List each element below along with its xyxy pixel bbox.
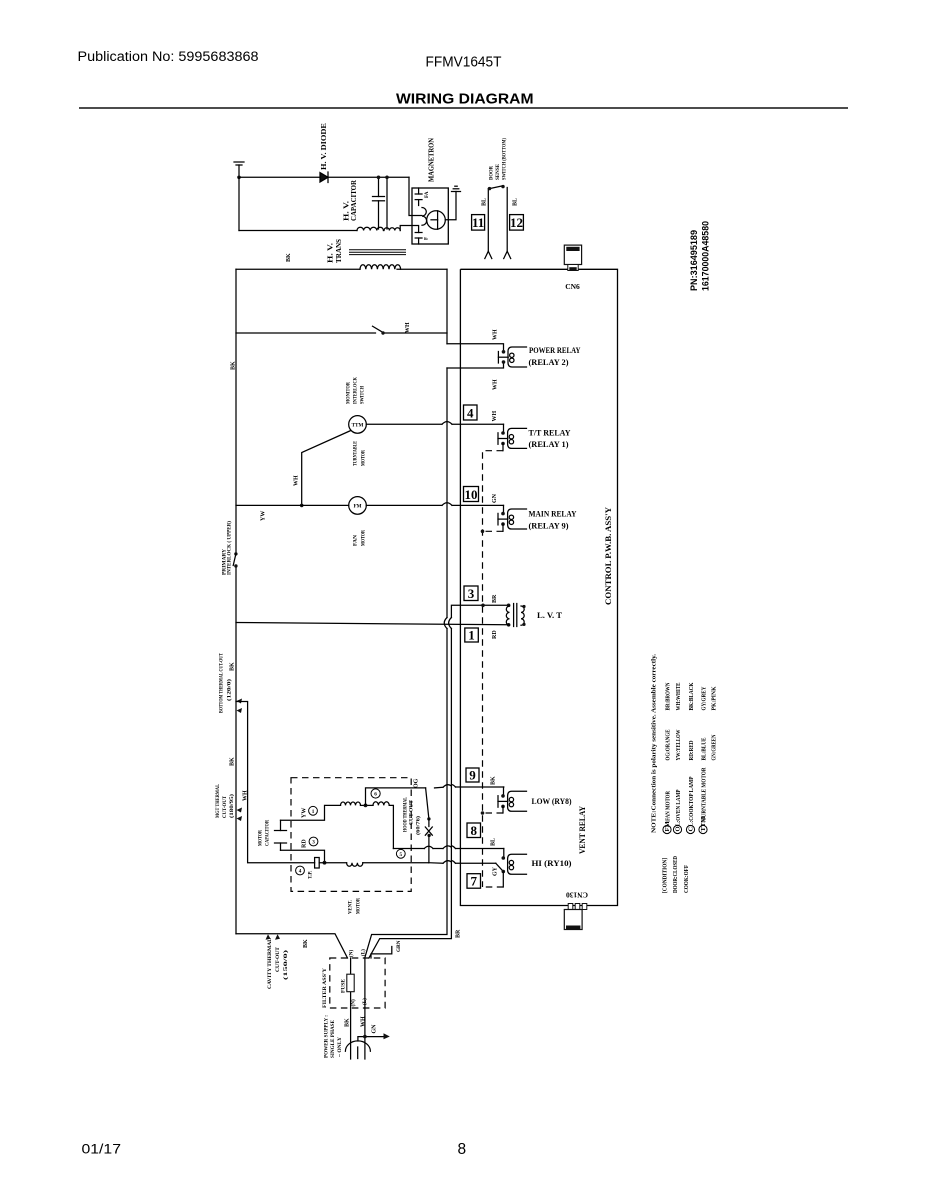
- svg-text:FA: FA: [424, 191, 430, 198]
- svg-text:BK: BK: [231, 361, 237, 370]
- svg-text:FUSE: FUSE: [340, 978, 346, 993]
- svg-text:INTERLOCK: INTERLOCK: [353, 377, 359, 404]
- svg-text:(RELAY 1): (RELAY 1): [529, 440, 569, 449]
- svg-text:SINGLE PHASE: SINGLE PHASE: [330, 1019, 336, 1058]
- svg-text:BK: BK: [230, 662, 236, 671]
- svg-text:WH: WH: [492, 379, 498, 390]
- svg-text:(L): (L): [360, 949, 367, 956]
- svg-text:GN: GN: [372, 1024, 378, 1034]
- svg-text:MOTOR: MOTOR: [356, 898, 362, 914]
- svg-text:GN: GN: [492, 493, 498, 503]
- svg-text:~ ONLY: ~ ONLY: [337, 1037, 343, 1057]
- svg-text:T.P.: T.P.: [308, 870, 314, 879]
- svg-text:BK: BK: [303, 939, 309, 948]
- svg-text:9: 9: [469, 768, 476, 783]
- svg-text:POWER RELAY: POWER RELAY: [529, 346, 581, 355]
- svg-text:7: 7: [470, 874, 477, 889]
- svg-text:GRN: GRN: [396, 940, 402, 952]
- svg-text:LOW (RY8): LOW (RY8): [532, 797, 572, 806]
- svg-text:GY:GREY: GY:GREY: [701, 686, 708, 710]
- svg-text:TTM: TTM: [352, 423, 364, 429]
- svg-text:CN130: CN130: [566, 891, 588, 900]
- svg-text:DOOR: DOOR: [489, 166, 495, 180]
- svg-text:SWITCH: SWITCH: [360, 386, 366, 404]
- svg-text:SENSE: SENSE: [495, 163, 501, 180]
- svg-text:12: 12: [510, 215, 523, 230]
- svg-text:MOTOR: MOTOR: [361, 450, 367, 466]
- svg-text:BK: BK: [491, 776, 497, 785]
- svg-text:MGT THERMAL: MGT THERMAL: [215, 784, 221, 818]
- svg-text:F: F: [424, 237, 430, 240]
- svg-text:CN6: CN6: [565, 282, 580, 291]
- svg-text:WH: WH: [492, 411, 498, 422]
- svg-text:GN:GREEN: GN:GREEN: [710, 734, 717, 760]
- svg-text:GY: GY: [493, 866, 499, 876]
- svg-text:(N): (N): [350, 999, 357, 1006]
- svg-text:(RELAY 9): (RELAY 9): [529, 522, 569, 531]
- svg-text:WH: WH: [360, 1016, 366, 1027]
- svg-text:T/T RELAY: T/T RELAY: [529, 429, 571, 438]
- svg-text:(RELAY 2): (RELAY 2): [529, 358, 569, 367]
- svg-text:10: 10: [465, 487, 478, 502]
- svg-text:YW:YELLOW: YW:YELLOW: [675, 729, 682, 760]
- svg-text:DOOR:CLOSED: DOOR:CLOSED: [672, 856, 679, 893]
- svg-text:WIRING DIAGRAM: WIRING DIAGRAM: [396, 91, 534, 108]
- svg-text:BL: BL: [491, 838, 497, 846]
- svg-text:OG: OG: [413, 778, 419, 788]
- svg-text:CAPACITOR: CAPACITOR: [349, 179, 358, 221]
- svg-text:CUT-OUT: CUT-OUT: [275, 946, 281, 972]
- svg-text:WH: WH: [294, 475, 300, 486]
- svg-text:Publication No: 5995683868: Publication No: 5995683868: [78, 49, 259, 64]
- svg-text:COOK:OFF: COOK:OFF: [683, 865, 690, 893]
- svg-text:YW: YW: [261, 511, 267, 521]
- svg-text:VENT.: VENT.: [348, 899, 354, 914]
- svg-text:BL:BLUE: BL:BLUE: [701, 737, 708, 760]
- svg-text:(60/76): (60/76): [415, 816, 422, 835]
- svg-text:POWER SUPPLY :: POWER SUPPLY :: [324, 1015, 330, 1058]
- svg-text:8: 8: [470, 823, 477, 838]
- svg-text:FFMV1645T: FFMV1645T: [426, 55, 502, 71]
- svg-text:4: 4: [299, 869, 302, 875]
- svg-text:(180/95): (180/95): [228, 794, 235, 818]
- svg-text:FAN: FAN: [353, 535, 359, 546]
- svg-text:5: 5: [400, 852, 403, 858]
- svg-text:4: 4: [467, 405, 474, 420]
- svg-text:INTERLOCK ( UPPER): INTERLOCK ( UPPER): [226, 521, 233, 575]
- svg-text:NOTE:Connection is polarity se: NOTE:Connection is polarity sensitive. A…: [651, 654, 658, 833]
- svg-text:(150/0): (150/0): [282, 949, 289, 980]
- svg-text::OVEN LAMP: :OVEN LAMP: [675, 790, 682, 823]
- svg-text:CUT-OUT: CUT-OUT: [409, 799, 415, 825]
- svg-text:1: 1: [312, 809, 315, 815]
- svg-text:16170000A48580: 16170000A48580: [701, 221, 712, 291]
- svg-text:BL: BL: [513, 198, 519, 206]
- svg-text:MOTOR: MOTOR: [361, 530, 367, 546]
- svg-text:H. V. DIODE: H. V. DIODE: [319, 123, 328, 170]
- svg-text:BK: BK: [230, 757, 236, 766]
- svg-text:3: 3: [468, 586, 475, 601]
- svg-text:8: 8: [458, 1141, 467, 1158]
- svg-text:MAGNETRON: MAGNETRON: [427, 137, 436, 182]
- svg-text:BOTTOM THERMAL CUT-OUT: BOTTOM THERMAL CUT-OUT: [219, 653, 225, 713]
- svg-text:L. V. T: L. V. T: [537, 611, 563, 620]
- svg-text:PN:316495189: PN:316495189: [689, 230, 700, 291]
- svg-text:BR: BR: [455, 929, 461, 938]
- svg-text:TRANS: TRANS: [334, 239, 343, 263]
- svg-text:1: 1: [468, 628, 475, 643]
- svg-text:6: 6: [374, 792, 377, 798]
- svg-text:BK:BLACK: BK:BLACK: [688, 682, 695, 711]
- svg-text:3: 3: [312, 840, 315, 846]
- svg-text:CAVITY THERMAL: CAVITY THERMAL: [267, 937, 273, 989]
- svg-text:RD:RED: RD:RED: [688, 740, 695, 760]
- svg-text:MAIN RELAY: MAIN RELAY: [529, 510, 577, 519]
- svg-text:HI (RY10): HI (RY10): [532, 859, 572, 868]
- svg-text:FILTER ASS'Y: FILTER ASS'Y: [322, 968, 328, 1008]
- svg-text:MONITOR: MONITOR: [346, 382, 352, 404]
- svg-text:[CONDITION]: [CONDITION]: [662, 858, 669, 893]
- svg-text:RD: RD: [492, 630, 498, 639]
- svg-text:WH: WH: [405, 322, 411, 333]
- svg-text:(L): (L): [361, 998, 368, 1005]
- svg-text:SWITCH (BOTTOM): SWITCH (BOTTOM): [501, 138, 508, 180]
- svg-text:01/17: 01/17: [82, 1141, 122, 1157]
- svg-text:BK: BK: [345, 1018, 351, 1027]
- svg-text:MOTOR: MOTOR: [258, 830, 264, 846]
- svg-text:BK: BK: [286, 253, 292, 262]
- svg-text:WH: WH: [243, 790, 249, 801]
- svg-text:RD: RD: [302, 839, 308, 848]
- svg-text:FM: FM: [353, 504, 361, 510]
- svg-text:(N): (N): [348, 950, 355, 957]
- svg-text:TURNTABLE: TURNTABLE: [353, 441, 359, 466]
- svg-text:CONTROL P.W.B. ASS'Y: CONTROL P.W.B. ASS'Y: [604, 507, 613, 605]
- svg-text::FAN MOTOR: :FAN MOTOR: [665, 791, 672, 823]
- svg-text:YW: YW: [302, 808, 308, 818]
- svg-text:WH: WH: [492, 329, 498, 340]
- svg-text::COOKTOP LAMP: :COOKTOP LAMP: [688, 777, 695, 823]
- svg-text:VENT RELAY: VENT RELAY: [578, 806, 587, 854]
- svg-text:CUT-OUT: CUT-OUT: [222, 796, 228, 818]
- svg-text:PK:PINK: PK:PINK: [710, 686, 717, 711]
- svg-text:BR:BROWN: BR:BROWN: [665, 682, 672, 710]
- svg-text:(120/0): (120/0): [226, 679, 233, 701]
- svg-text:11: 11: [472, 215, 484, 230]
- svg-text:CAPACITOR: CAPACITOR: [265, 820, 271, 846]
- svg-text:WH:WHITE: WH:WHITE: [675, 682, 682, 710]
- svg-text::TURNTABLE MOTOR: :TURNTABLE MOTOR: [701, 767, 708, 822]
- svg-text:BL: BL: [482, 198, 488, 206]
- svg-text:OG:ORANGE: OG:ORANGE: [665, 729, 672, 760]
- svg-text:BR: BR: [492, 594, 498, 603]
